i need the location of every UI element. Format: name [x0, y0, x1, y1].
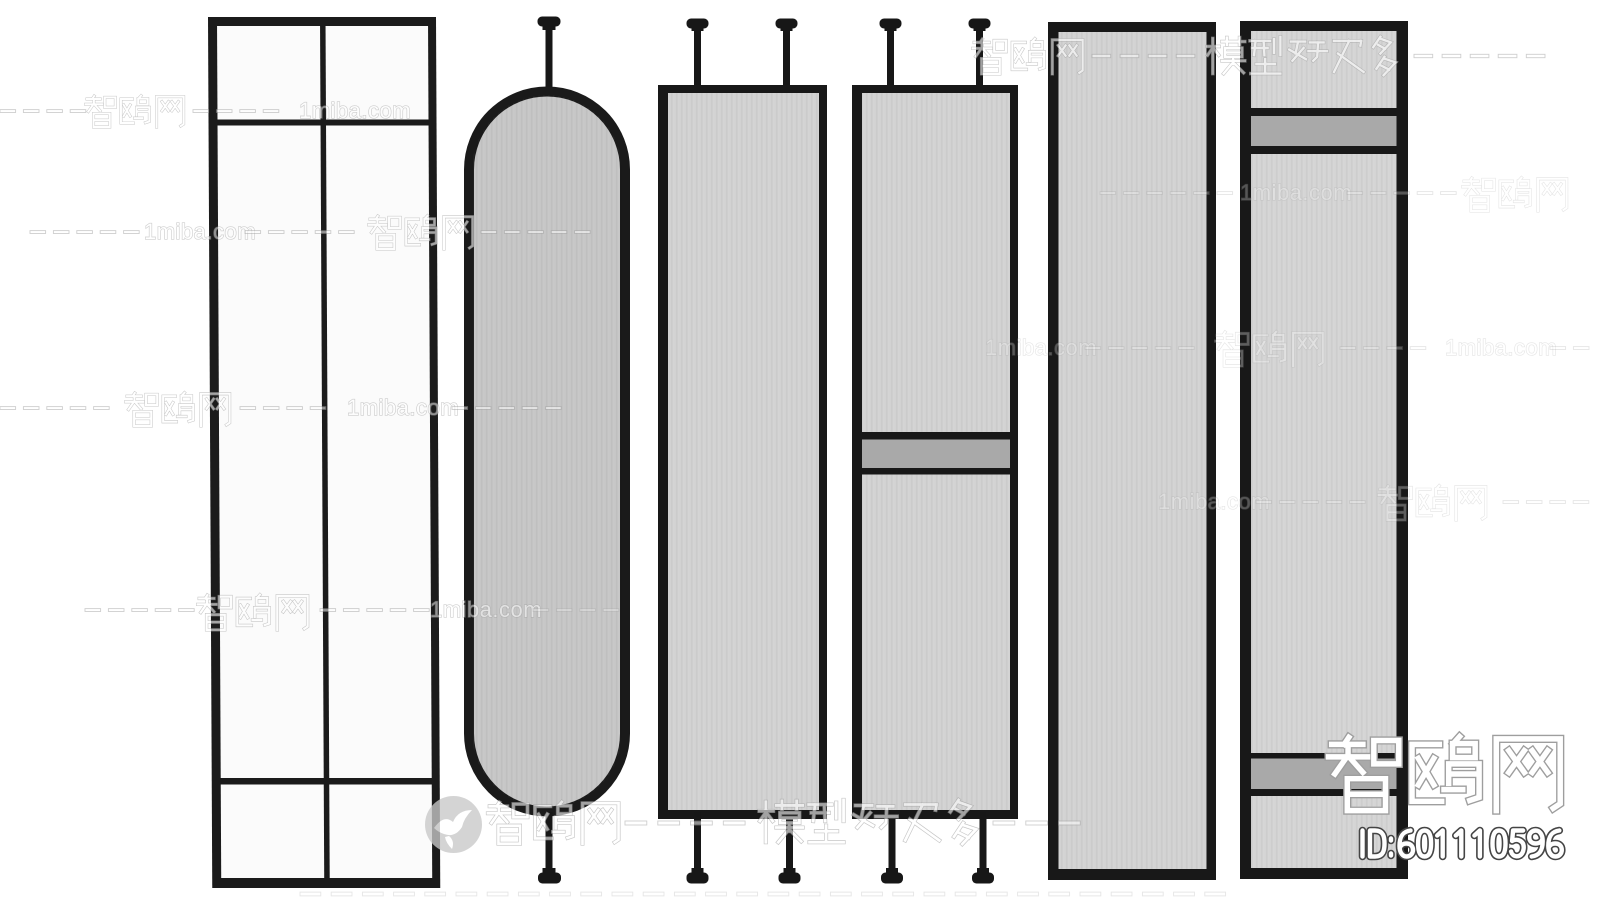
svg-text:1miba.com: 1miba.com — [144, 219, 256, 244]
svg-text:1miba.com: 1miba.com — [347, 395, 459, 420]
svg-text:1miba.com: 1miba.com — [1240, 180, 1352, 205]
svg-text:1miba.com: 1miba.com — [430, 597, 542, 622]
svg-text:1miba.com: 1miba.com — [1158, 489, 1270, 514]
svg-text:1miba.com: 1miba.com — [1445, 335, 1557, 360]
svg-text:1miba.com: 1miba.com — [985, 335, 1097, 360]
svg-text:1miba.com: 1miba.com — [299, 98, 411, 123]
